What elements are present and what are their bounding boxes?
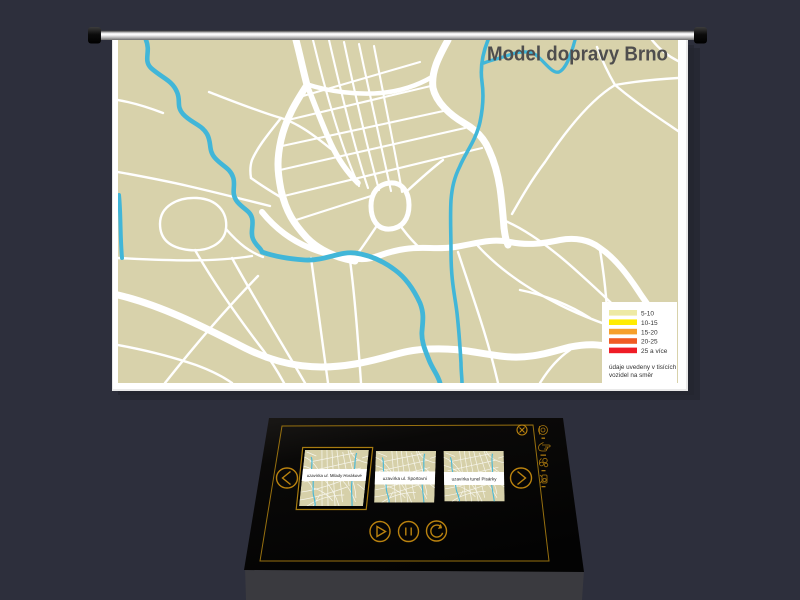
svg-text:vozidel na směr: vozidel na směr xyxy=(609,372,653,379)
svg-text:20-25: 20-25 xyxy=(641,339,658,346)
svg-text:uzavírka ul. Milady Horákové: uzavírka ul. Milady Horákové xyxy=(306,473,362,478)
svg-text:10-15: 10-15 xyxy=(641,320,658,327)
svg-text:5-10: 5-10 xyxy=(641,311,654,318)
svg-text:25 a více: 25 a více xyxy=(641,348,668,355)
svg-text:Model dopravy Brno: Model dopravy Brno xyxy=(487,44,668,66)
svg-text:údaje uvedeny v tisících: údaje uvedeny v tisících xyxy=(609,364,677,371)
svg-text:15-20: 15-20 xyxy=(641,329,658,336)
svg-text:uzavírka ul. Sportovní: uzavírka ul. Sportovní xyxy=(383,476,428,481)
svg-text:uzavírka tunel Pisárky: uzavírka tunel Pisárky xyxy=(452,477,498,482)
